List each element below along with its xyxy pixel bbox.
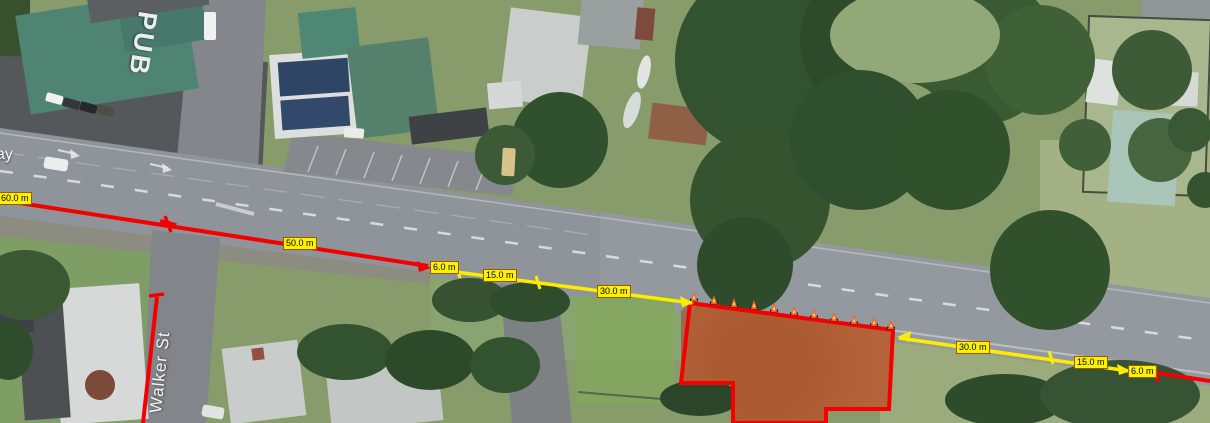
measurement-label-50m[interactable]: 50.0 m <box>283 237 317 250</box>
red-measure-lines[interactable] <box>0 200 1210 423</box>
traffic-cone-marker[interactable] <box>710 295 718 304</box>
measurement-label-15m-right[interactable]: 15.0 m <box>1074 356 1108 369</box>
red-line-left-tick-dash <box>160 222 176 226</box>
work-zone-area[interactable] <box>681 303 893 423</box>
traffic-cone-marker[interactable] <box>770 303 778 312</box>
traffic-cone-marker[interactable] <box>730 298 738 307</box>
red-line-walker-tbar <box>149 294 164 296</box>
measurement-label-15m-left[interactable]: 15.0 m <box>483 269 517 282</box>
yellow-tick-right-1 <box>1049 351 1053 364</box>
yellow-tick-left-2 <box>536 276 540 289</box>
traffic-cone-marker[interactable] <box>810 309 818 318</box>
traffic-cone-marker[interactable] <box>790 306 798 315</box>
traffic-plan-overlay <box>0 0 1210 423</box>
traffic-cone-marker[interactable] <box>750 300 758 309</box>
yellow-line-left[interactable] <box>433 269 692 303</box>
measurement-label-6m-left[interactable]: 6.0 m <box>430 261 459 274</box>
traffic-cone-marker[interactable] <box>850 315 858 324</box>
measurement-label-30m-left[interactable]: 30.0 m <box>597 285 631 298</box>
measurement-label-60m[interactable]: 60.0 m <box>0 192 32 205</box>
traffic-cone-marker[interactable] <box>870 317 878 326</box>
measurement-label-6m-right[interactable]: 6.0 m <box>1128 365 1157 378</box>
red-arrowhead-left <box>417 261 431 272</box>
aerial-map-view: ay Walker St PUB <box>0 0 1210 423</box>
red-line-walker-st[interactable] <box>143 297 157 423</box>
traffic-cone-marker[interactable] <box>690 292 698 301</box>
traffic-cone-marker[interactable] <box>830 312 838 321</box>
measurement-label-30m-right[interactable]: 30.0 m <box>956 341 990 354</box>
traffic-cone-marker[interactable] <box>887 320 895 329</box>
red-line-left[interactable] <box>0 200 428 266</box>
